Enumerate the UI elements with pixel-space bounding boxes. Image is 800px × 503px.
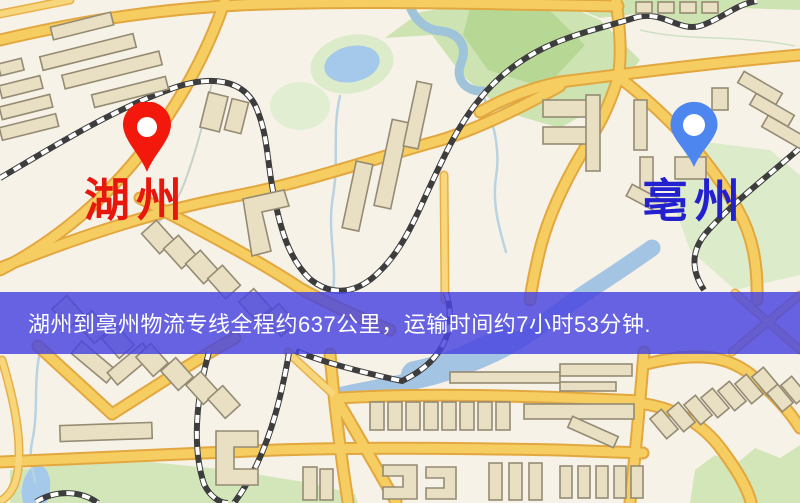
logistics-route-map: 湖州 亳州 湖州到亳州物流专线全程约637公里，运输时间约7小时53分钟.: [0, 0, 800, 503]
route-info-text: 湖州到亳州物流专线全程约637公里，运输时间约7小时53分钟.: [0, 307, 651, 339]
destination-pin-icon: [665, 101, 723, 169]
destination-city-label: 亳州: [642, 179, 746, 225]
map-background: [0, 0, 800, 503]
route-info-banner: 湖州到亳州物流专线全程约637公里，运输时间约7小时53分钟.: [0, 292, 800, 354]
origin-city-label: 湖州: [84, 178, 188, 224]
origin-pin-icon: [117, 102, 177, 174]
